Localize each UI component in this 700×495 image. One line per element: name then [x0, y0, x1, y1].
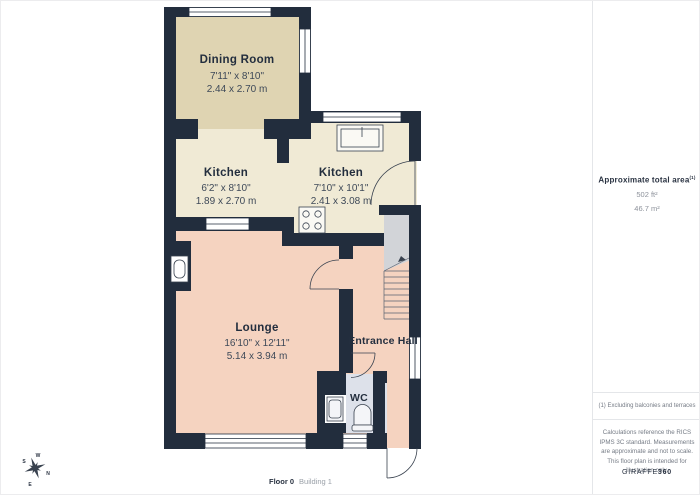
total-area-superscript: (1): [689, 175, 695, 180]
room-dims-kitchen-1-metric: 1.89 x 2.70 m: [196, 196, 257, 207]
wall: [373, 371, 385, 433]
window-dining-top: [189, 8, 271, 17]
floor-plan-page: Dining Room 7'11" x 8'10" 2.44 x 2.70 m …: [0, 0, 700, 495]
compass-e: E: [28, 482, 32, 488]
fireplace-icon: [171, 256, 188, 282]
wall: [367, 433, 387, 449]
wall: [339, 233, 353, 259]
wall: [277, 123, 289, 163]
total-area-block: Approximate total area(1) 502 ft² 46.7 m…: [593, 175, 700, 213]
room-dims-kitchen-1-imperial: 6'2" x 8'10": [201, 183, 251, 194]
wall: [164, 433, 205, 449]
compass-w: W: [36, 453, 41, 459]
room-dims-dining-imperial: 7'11" x 8'10": [210, 71, 265, 82]
window-hatch-kitchen-lounge: [206, 218, 249, 230]
room-label-lounge: Lounge: [235, 322, 278, 334]
window-lounge-bottom: [205, 434, 306, 448]
building-label: Building 1: [299, 477, 332, 486]
compass-n: N: [46, 471, 50, 477]
total-area-ft: 502 ft²: [593, 190, 700, 199]
wall: [339, 289, 353, 373]
door-front-entrance: [387, 448, 417, 478]
basin-icon: [325, 395, 346, 423]
total-area-title-text: Approximate total area: [598, 176, 689, 185]
room-dims-dining-metric: 2.44 x 2.70 m: [207, 84, 268, 95]
room-label-kitchen-2: Kitchen: [319, 167, 363, 179]
room-label-kitchen-1: Kitchen: [204, 167, 248, 179]
window-wc-bottom: [343, 434, 367, 448]
wall: [282, 233, 384, 246]
window-kitchen-top: [323, 112, 401, 122]
footnote-box: (1) Excluding balconies and terraces: [593, 392, 700, 420]
brand-name: GIRAFFE: [622, 469, 658, 476]
hob-icon: [299, 207, 325, 233]
wall: [412, 433, 421, 449]
window-dining-right: [300, 29, 311, 73]
wall: [409, 213, 421, 449]
compass-icon: W S N E: [21, 453, 50, 488]
compass-s: S: [22, 459, 26, 465]
wall: [306, 433, 343, 449]
wall: [164, 119, 198, 139]
room-label-wc: WC: [350, 392, 368, 404]
total-area-title: Approximate total area(1): [593, 175, 700, 185]
footnote-text: (1) Excluding balconies and terraces: [598, 403, 695, 409]
room-dims-lounge-metric: 5.14 x 3.94 m: [227, 351, 288, 362]
brand-suffix: 360: [658, 469, 672, 476]
sink-icon: [337, 125, 383, 151]
footer: Floor 0 Building 1: [269, 477, 332, 486]
room-dims-lounge-imperial: 16'10" x 12'11": [224, 338, 290, 349]
total-area-m: 46.7 m²: [593, 204, 700, 213]
info-panel: Approximate total area(1) 502 ft² 46.7 m…: [593, 1, 700, 495]
room-label-entrance-hall: Entrance Hall: [348, 335, 418, 347]
room-dims-kitchen-2-imperial: 7'10" x 10'1": [314, 183, 369, 194]
floor-label: Floor 0: [269, 477, 294, 486]
dining-room-floor: [165, 7, 308, 129]
wall: [409, 123, 421, 161]
room-label-dining: Dining Room: [200, 54, 275, 66]
room-dims-kitchen-2-metric: 2.41 x 3.08 m: [311, 196, 372, 207]
toilet-icon: [352, 405, 373, 432]
brand-logo: GIRAFFE360: [593, 469, 700, 476]
